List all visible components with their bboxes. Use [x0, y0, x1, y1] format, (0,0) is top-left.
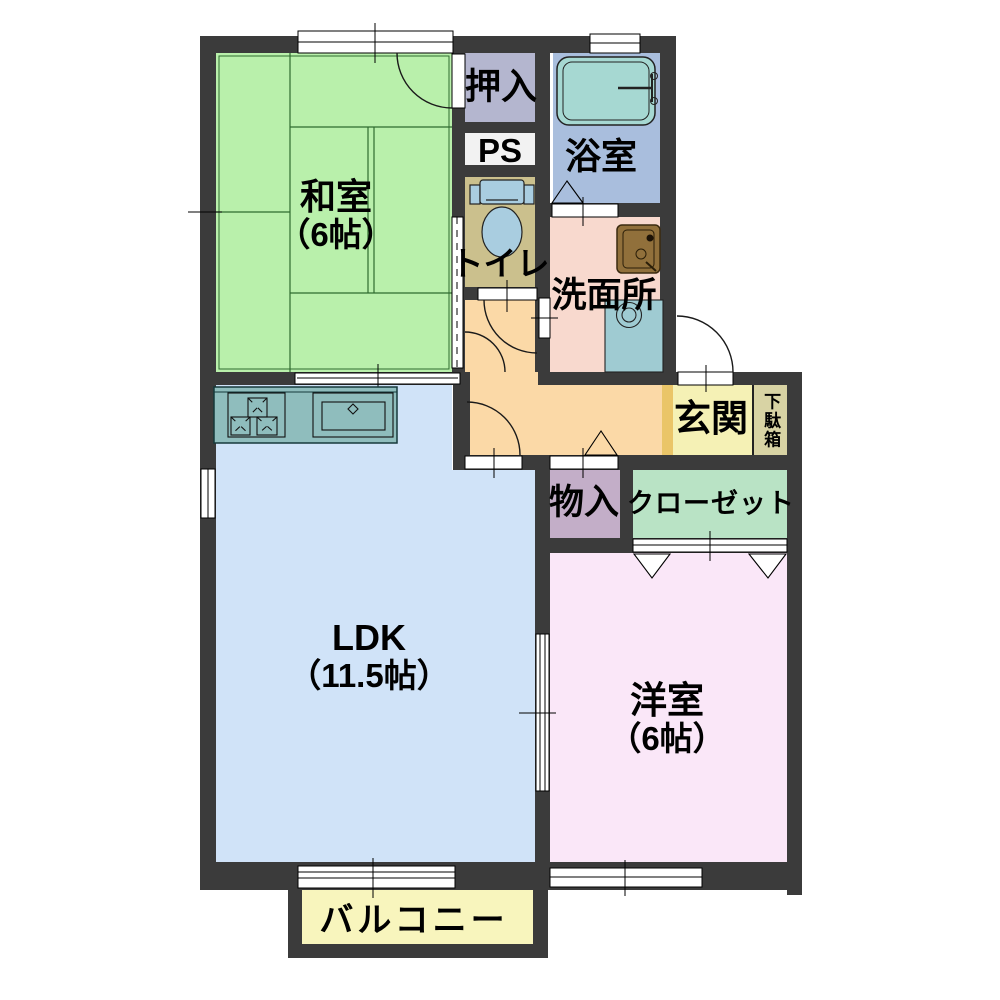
label-toilet: トイレ [451, 246, 550, 282]
label-youshitsu-name: 洋室 [630, 680, 704, 721]
window-ldk-left [201, 469, 215, 518]
floor-plan: 和室 （6帖） 押入 PS トイレ 浴室 洗面所 玄関 下駄箱 物入 クローゼッ… [0, 0, 1000, 1000]
label-balcony: バルコニー [319, 903, 508, 940]
label-washitsu-size: （6帖） [277, 217, 394, 253]
arc-entrance-door [677, 316, 733, 372]
label-washitsu: 和室 （6帖） [277, 178, 394, 253]
label-ldk-size: （11.5帖） [288, 658, 449, 694]
label-getabako: 下駄箱 [761, 393, 779, 450]
hallway-floor-vertical [465, 300, 538, 455]
label-genkan: 玄関 [674, 399, 748, 439]
door-opening-washitsu-oshiire [452, 54, 465, 108]
label-washitsu-name: 和室 [300, 176, 372, 217]
hallway-floor-horizontal [538, 372, 662, 455]
sliding-panel-washitsu-right [452, 217, 463, 368]
label-youshitsu: 洋室 （6帖） [608, 681, 725, 757]
label-storage: 物入 [549, 484, 619, 522]
label-oshiire: 押入 [465, 68, 537, 107]
label-washroom: 洗面所 [551, 277, 656, 315]
label-ps: PS [478, 133, 522, 169]
label-ldk: LDK （11.5帖） [288, 619, 449, 694]
label-youshitsu-size: （6帖） [608, 721, 725, 757]
label-bathroom: 浴室 [565, 138, 637, 177]
window-bathroom-top [590, 34, 640, 53]
room-ldk-floor-upper [216, 385, 452, 470]
entrance-step-strip [662, 385, 673, 455]
label-ldk-name: LDK [332, 617, 406, 658]
window-youshitsu-balcony [550, 860, 702, 896]
room-bathroom-floor [553, 53, 660, 203]
label-closet: クローゼット [627, 489, 795, 518]
